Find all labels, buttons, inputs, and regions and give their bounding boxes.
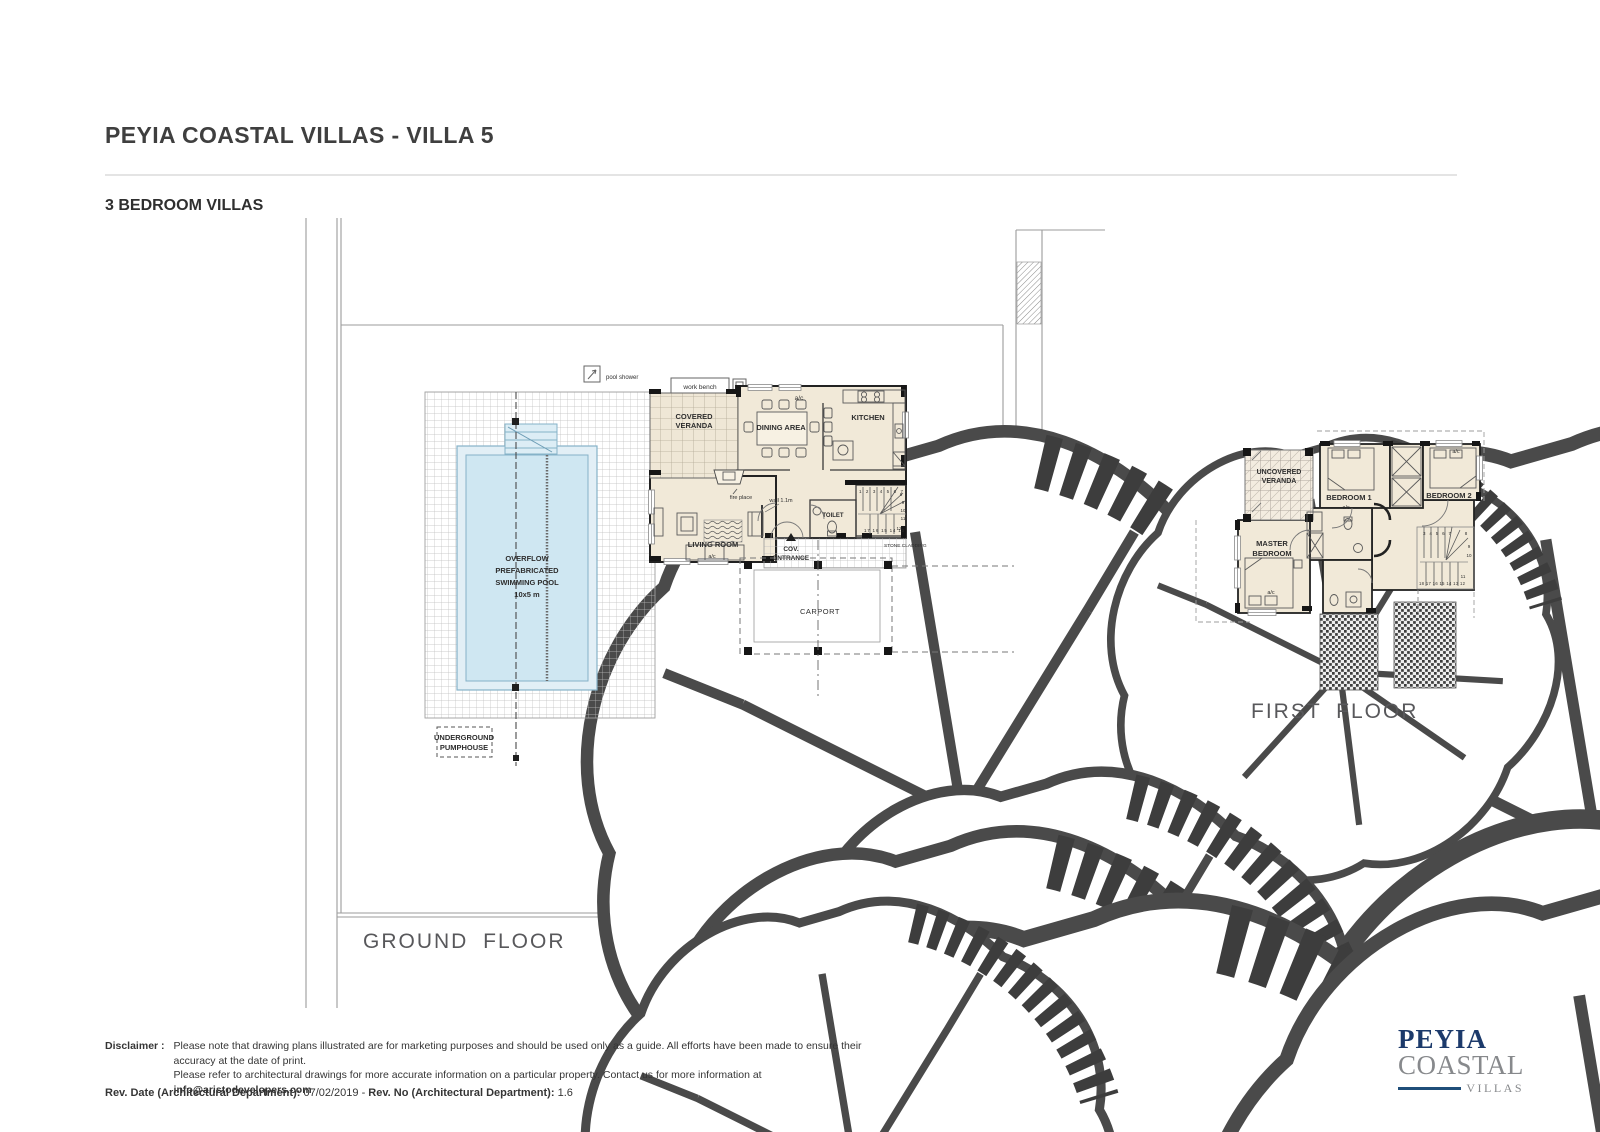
svg-text:11: 11 [901, 516, 906, 521]
pumphouse: UNDERGROUND PUMPHOUSE [434, 727, 495, 757]
logo-line-villas: VILLAS [1466, 1081, 1524, 1096]
logo-line-peyia: PEYIA [1398, 1026, 1524, 1052]
ground-floor-label: GROUND FLOOR [363, 930, 566, 954]
svg-text:VERANDA: VERANDA [1262, 478, 1297, 485]
svg-text:a/c: a/c [708, 554, 716, 560]
covered-veranda-area [650, 393, 738, 478]
floor-plan-drawing: OVERFLOW PREFABRICATED SWIMMING POOL 10x… [0, 0, 1600, 1132]
disclaimer-line2: Please refer to architectural drawings f… [174, 1069, 762, 1081]
svg-text:BEDROOM 1: BEDROOM 1 [1326, 493, 1371, 502]
svg-text:wall 1.1m: wall 1.1m [768, 498, 793, 504]
svg-text:11: 11 [1461, 574, 1466, 579]
svg-text:OVERFLOW: OVERFLOW [505, 554, 549, 563]
pergola-left [1320, 614, 1378, 690]
svg-text:a/c: a/c [1452, 449, 1460, 455]
svg-text:COV.: COV. [783, 546, 798, 553]
svg-text:PUMPHOUSE: PUMPHOUSE [440, 743, 488, 752]
svg-text:TOILET: TOILET [822, 513, 844, 519]
svg-text:DINING AREA: DINING AREA [756, 423, 806, 432]
logo-line-coastal: COASTAL [1398, 1052, 1524, 1079]
svg-text:BEDROOM 2: BEDROOM 2 [1426, 491, 1471, 500]
bathroom-2-room [1323, 560, 1372, 613]
bathroom-1-room [1305, 508, 1372, 560]
svg-text:UNCOVERED: UNCOVERED [1257, 469, 1302, 476]
svg-text:1 2 3 4 5 6 7: 1 2 3 4 5 6 7 [859, 489, 903, 494]
svg-text:SWIMMING POOL: SWIMMING POOL [495, 578, 559, 587]
svg-text:work bench: work bench [682, 384, 717, 391]
disclaimer-line1: Please note that drawing plans illustrat… [174, 1040, 862, 1067]
svg-text:10x5 m: 10x5 m [514, 590, 540, 599]
living-room-block [650, 476, 776, 562]
svg-text:18 17 16 15 14 13 12: 18 17 16 15 14 13 12 [1419, 581, 1466, 586]
house-ground-floor: COVERED VERANDA DINING AREA a/c KITCHEN … [649, 385, 927, 569]
rev-no-value: 1.6 [555, 1087, 573, 1099]
svg-text:CARPORT: CARPORT [800, 607, 840, 616]
brand-logo: PEYIA COASTAL VILLAS [1398, 1026, 1524, 1096]
rev-date-value: 07/02/2019 - [300, 1087, 368, 1099]
pergola-right [1394, 602, 1456, 688]
svg-text:a/c: a/c [795, 395, 804, 402]
svg-text:VERANDA: VERANDA [675, 421, 713, 430]
svg-text:STONE CLADDING: STONE CLADDING [884, 543, 927, 549]
logo-underline [1398, 1087, 1461, 1090]
uncovered-veranda-area [1245, 450, 1313, 520]
svg-text:10: 10 [900, 508, 906, 513]
svg-text:COVERED: COVERED [675, 412, 713, 421]
svg-text:10: 10 [1466, 553, 1472, 558]
svg-text:fire place: fire place [730, 495, 752, 501]
svg-text:a/c: a/c [1267, 590, 1275, 596]
svg-text:pool shower: pool shower [606, 375, 638, 381]
svg-text:PREFABRICATED: PREFABRICATED [495, 566, 559, 575]
revision-line: Rev. Date (Architectural Department): 07… [105, 1087, 573, 1099]
svg-text:a/c: a/c [1342, 505, 1350, 511]
rev-date-label: Rev. Date (Architectural Department): [105, 1087, 300, 1099]
pool-steps [505, 424, 557, 454]
svg-text:LIVING ROOM: LIVING ROOM [688, 540, 738, 549]
svg-text:UNDERGROUND: UNDERGROUND [434, 733, 495, 742]
floor-plan-page: PEYIA COASTAL VILLAS - VILLA 5 3 BEDROOM… [0, 0, 1600, 1132]
first-floor-label: FIRST FLOOR [1251, 700, 1418, 724]
svg-text:MASTER: MASTER [1256, 539, 1288, 548]
pool-shower: pool shower [584, 366, 638, 382]
svg-text:BEDROOM: BEDROOM [1252, 549, 1291, 558]
rev-no-label: Rev. No (Architectural Department): [368, 1087, 554, 1099]
svg-text:12: 12 [896, 526, 902, 531]
svg-text:KITCHEN: KITCHEN [851, 413, 884, 422]
